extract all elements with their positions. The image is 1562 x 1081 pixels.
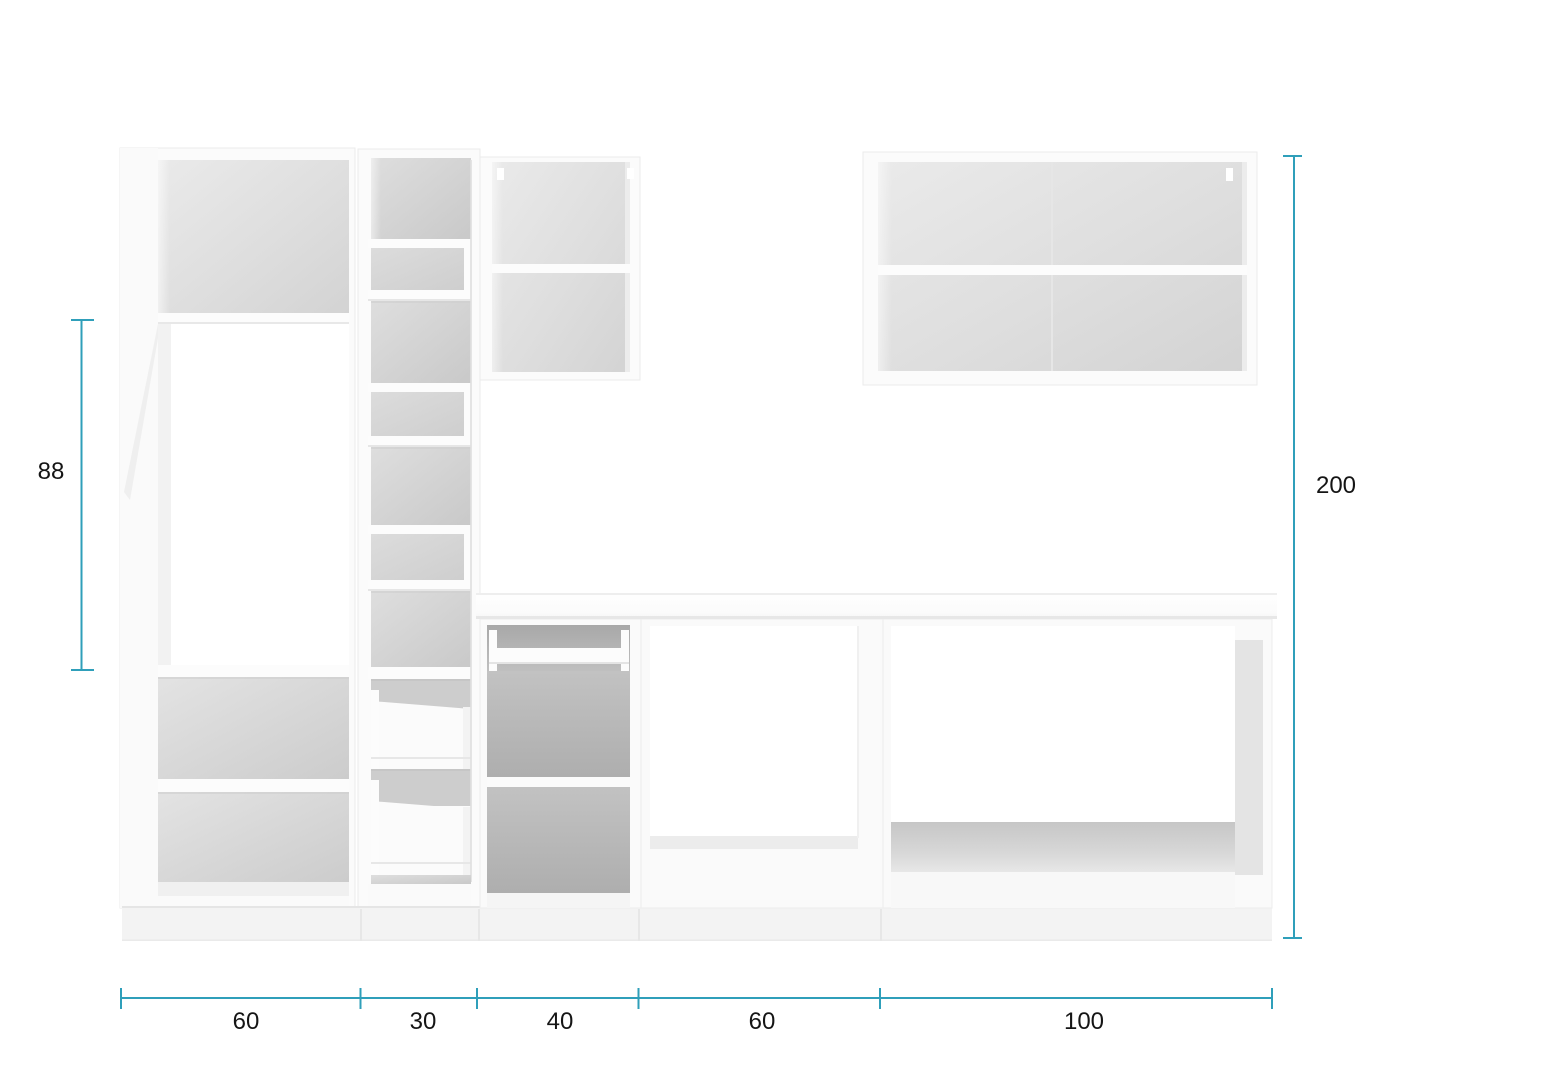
svg-text:30: 30 [410, 1008, 437, 1035]
svg-text:200: 200 [1316, 472, 1356, 499]
svg-text:100: 100 [1064, 1008, 1104, 1035]
svg-text:60: 60 [749, 1008, 776, 1035]
svg-text:40: 40 [547, 1008, 574, 1035]
svg-text:60: 60 [233, 1008, 260, 1035]
svg-text:88: 88 [38, 458, 65, 485]
